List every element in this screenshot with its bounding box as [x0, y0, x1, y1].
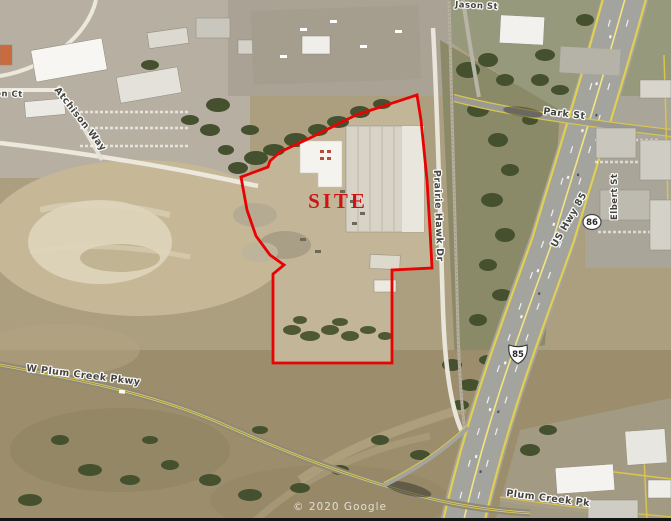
aerial-map-canvas: SITE Park St Jason St Prairie Hawk Dr US… [0, 0, 671, 521]
street-label-elbert-st: Elbert St [610, 174, 620, 220]
site-label: SITE [308, 189, 368, 213]
route-shield-86: 86 [583, 215, 601, 230]
street-label-on-ct: on Ct [0, 89, 23, 100]
aerial-site-map: SITE Park St Jason St Prairie Hawk Dr US… [0, 0, 671, 521]
google-attribution: © 2020 Google [293, 501, 387, 513]
svg-text:85: 85 [512, 350, 524, 360]
svg-text:86: 86 [586, 218, 598, 228]
